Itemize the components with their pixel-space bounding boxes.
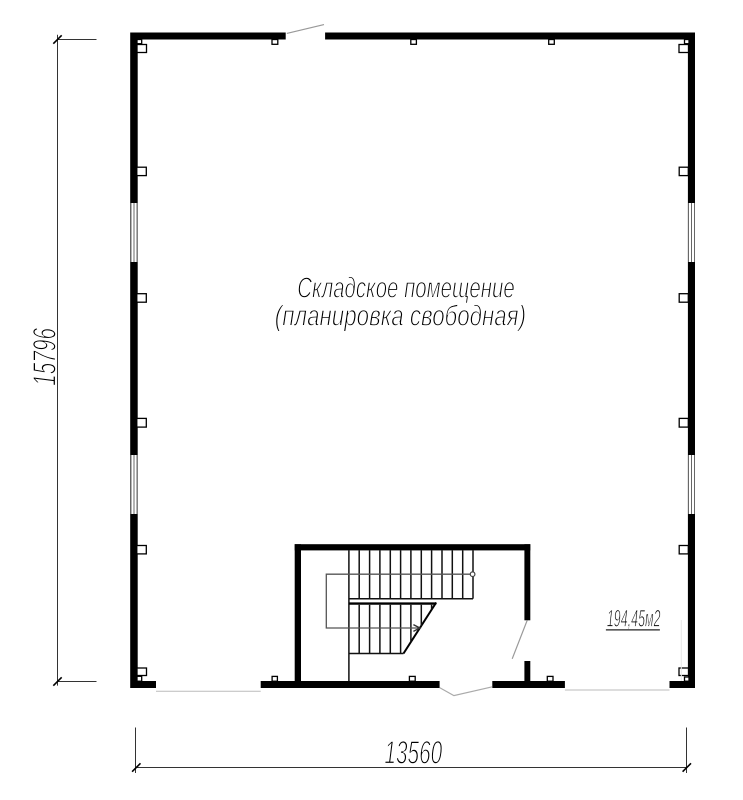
svg-text:15796: 15796 [27, 327, 63, 385]
svg-text:(планировка свободная): (планировка свободная) [275, 301, 526, 333]
svg-text:13560: 13560 [384, 735, 442, 771]
svg-text:Складское помещение: Складское помещение [297, 272, 514, 304]
svg-text:194,45м2: 194,45м2 [607, 606, 661, 633]
